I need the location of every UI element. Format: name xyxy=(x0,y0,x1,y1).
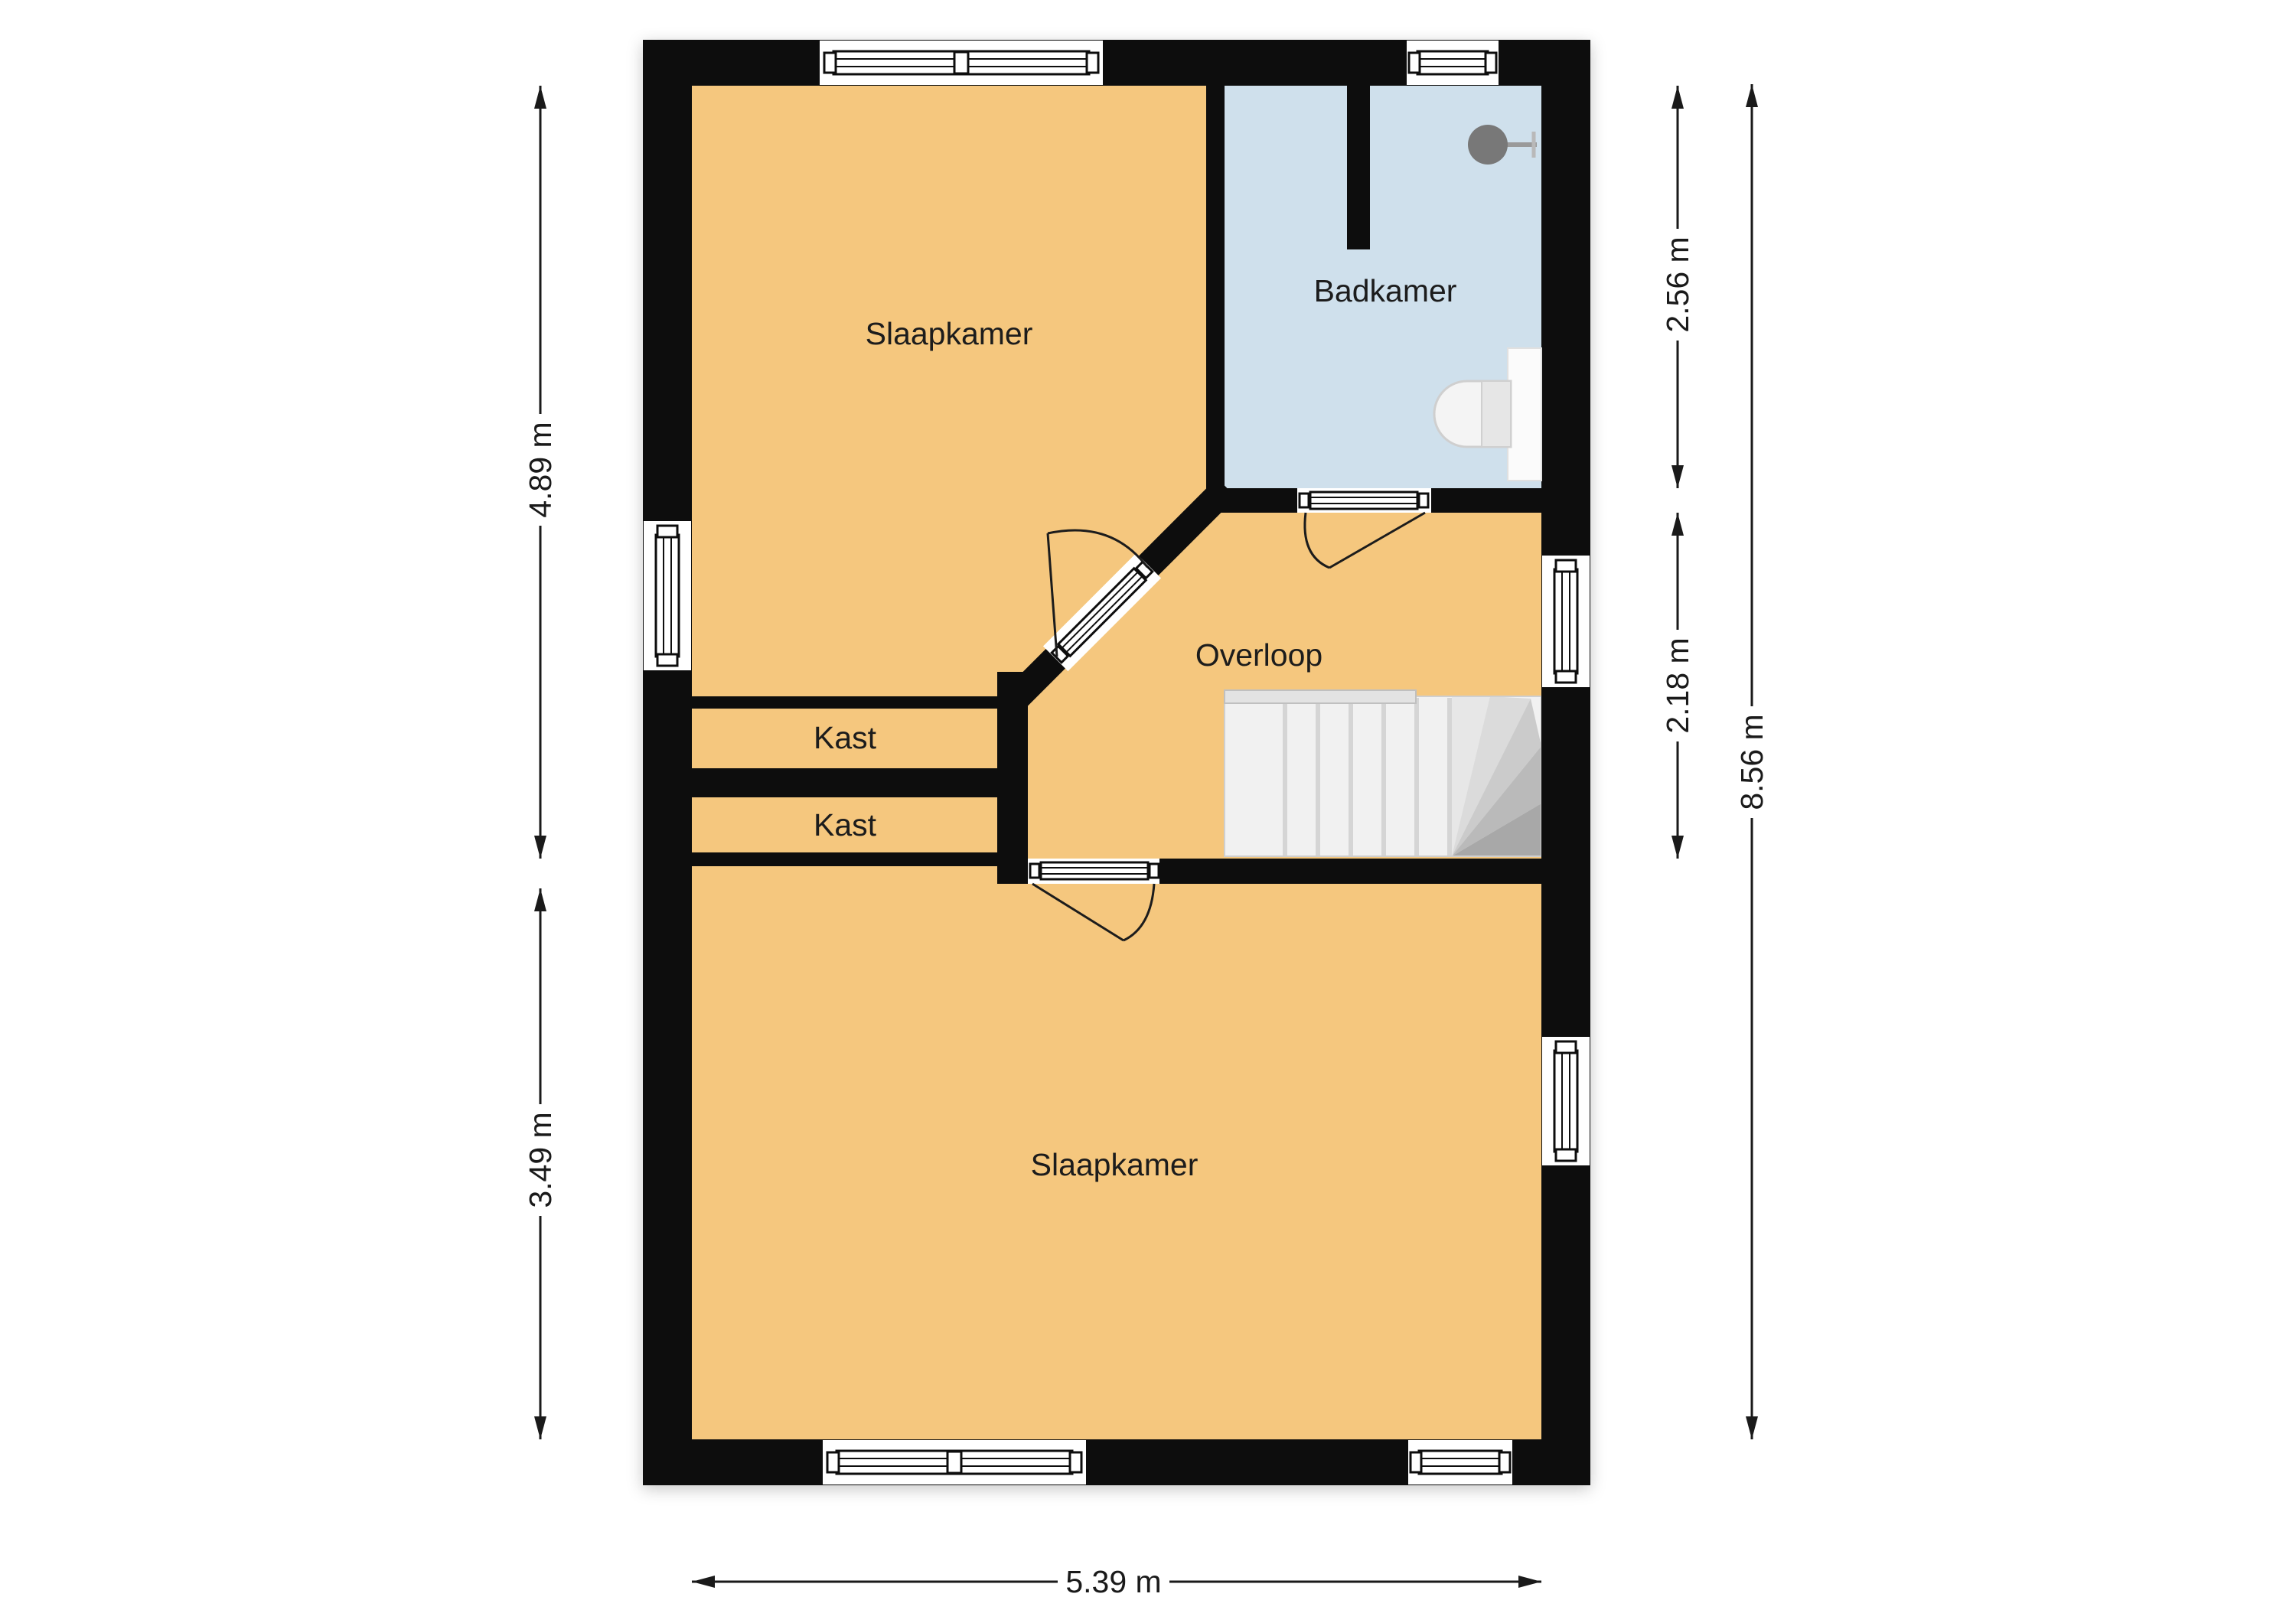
wall-kast-top xyxy=(692,696,997,709)
dim-label-right-middle: 2.18 m xyxy=(1660,637,1695,733)
room-label-slaapkamer-bottom: Slaapkamer xyxy=(1031,1147,1199,1182)
floorplan: Slaapkamer Badkamer Overloop Kast Kast S… xyxy=(643,40,1590,1485)
window xyxy=(823,1440,1086,1484)
window xyxy=(1542,556,1590,687)
stairs-icon xyxy=(1225,690,1541,856)
dimension-left-upper: 4.89 m xyxy=(523,86,558,859)
dimension-right-middle: 2.18 m xyxy=(1660,513,1695,859)
dim-label-bottom: 5.39 m xyxy=(1065,1564,1161,1599)
window xyxy=(820,41,1103,85)
stairs-handrail xyxy=(1225,690,1416,703)
window-mullion xyxy=(954,52,968,73)
room-label-kast-upper: Kast xyxy=(814,720,877,755)
dimension-right-upper: 2.56 m xyxy=(1660,86,1695,488)
wall-kast-middle xyxy=(692,768,1028,797)
wall-outer-right xyxy=(1541,40,1590,1485)
dim-label-right-total: 8.56 m xyxy=(1734,714,1769,810)
window xyxy=(1408,1440,1512,1484)
window xyxy=(1542,1037,1590,1165)
dimension-right-total: 8.56 m xyxy=(1734,84,1769,1439)
room-label-overloop: Overloop xyxy=(1195,637,1322,673)
floorplan-canvas: Slaapkamer Badkamer Overloop Kast Kast S… xyxy=(0,0,2296,1623)
dimension-bottom: 5.39 m xyxy=(692,1564,1541,1599)
dim-label-left-upper: 4.89 m xyxy=(523,422,558,517)
dim-label-right-upper: 2.56 m xyxy=(1660,236,1695,332)
room-label-kast-lower: Kast xyxy=(814,807,877,842)
wall-badkamer-left xyxy=(1206,40,1225,513)
floorplan-page: Slaapkamer Badkamer Overloop Kast Kast S… xyxy=(0,0,2296,1623)
dim-label-left-lower: 3.49 m xyxy=(523,1112,558,1207)
room-label-slaapkamer-top: Slaapkamer xyxy=(866,316,1033,351)
room-label-badkamer: Badkamer xyxy=(1314,273,1457,308)
window xyxy=(1407,41,1499,85)
dimension-left-lower: 3.49 m xyxy=(523,888,558,1439)
window xyxy=(644,521,691,670)
wall-kast-bottom xyxy=(692,852,1028,866)
wall-outer-left xyxy=(643,40,692,1485)
window-mullion xyxy=(947,1452,961,1473)
wall-shower-partition xyxy=(1347,83,1370,249)
